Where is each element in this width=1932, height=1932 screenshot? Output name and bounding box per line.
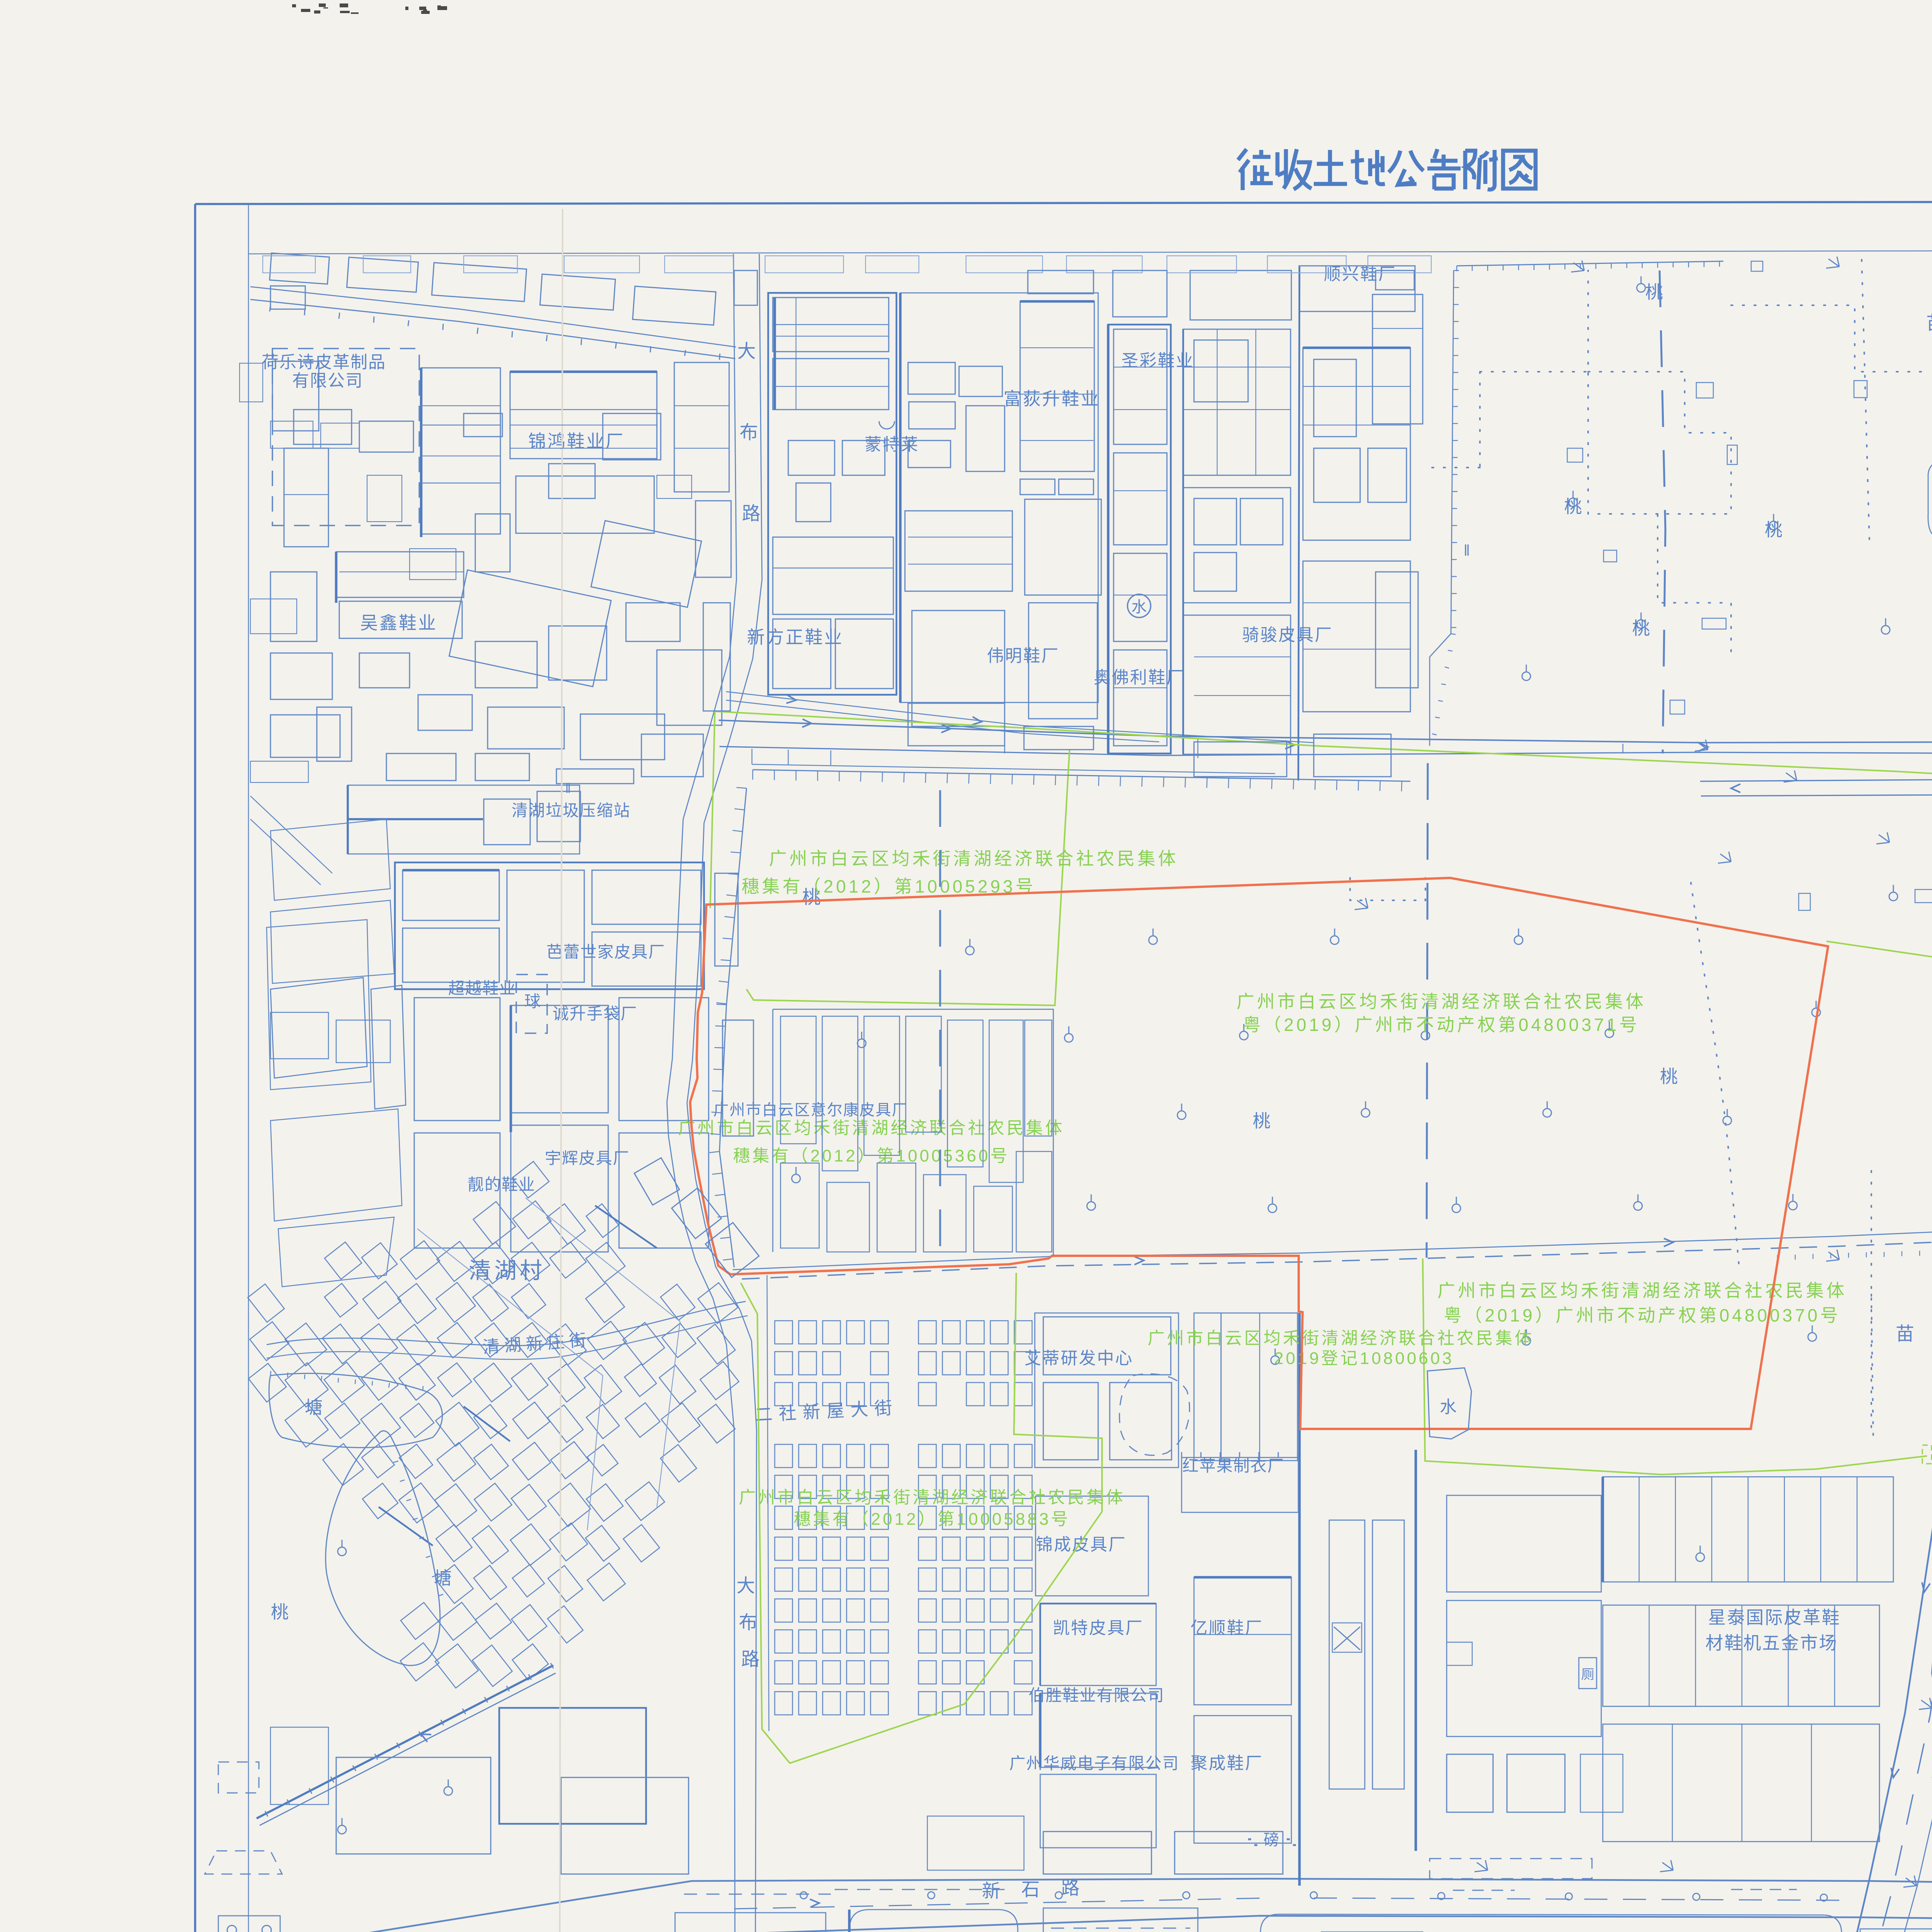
- svg-text:靓的鞋业: 靓的鞋业: [468, 1175, 536, 1194]
- svg-text:穗集有（2012）第10005360号: 穗集有（2012）第10005360号: [733, 1146, 1010, 1165]
- svg-text:广州市白云区均禾街清湖经济联合社农民集体: 广州市白云区均禾街清湖经济联合社农民集体: [1148, 1329, 1534, 1348]
- svg-text:塘: 塘: [305, 1397, 323, 1417]
- svg-text:布: 布: [739, 1612, 757, 1633]
- svg-text:新方正鞋业: 新方正鞋业: [747, 627, 844, 647]
- svg-text:富荻升鞋业: 富荻升鞋业: [1003, 389, 1100, 409]
- svg-text:桃: 桃: [1632, 618, 1650, 638]
- svg-text:广州华威电子有限公司: 广州华威电子有限公司: [1009, 1754, 1179, 1772]
- svg-text:宇辉皮具厂: 宇辉皮具厂: [545, 1149, 630, 1167]
- svg-text:芭蕾世家皮具厂: 芭蕾世家皮具厂: [546, 943, 665, 961]
- svg-text:路: 路: [1061, 1878, 1080, 1898]
- svg-text:亿顺鞋厂: 亿顺鞋厂: [1190, 1619, 1263, 1638]
- svg-text:‖: ‖: [1464, 542, 1470, 559]
- svg-text:广州市白云区均禾街清湖经济联合社农民集体: 广州市白云区均禾街清湖经济联合社农民集体: [739, 1488, 1125, 1507]
- svg-text:蒙特莱: 蒙特莱: [865, 435, 919, 454]
- svg-text:星泰国际皮革鞋: 星泰国际皮革鞋: [1708, 1607, 1841, 1628]
- svg-text:诚升手袋厂: 诚升手袋厂: [553, 1005, 638, 1023]
- svg-text:艾蒂研发中心: 艾蒂研发中心: [1024, 1349, 1133, 1368]
- svg-text:穗集有（2012）第10005883号: 穗集有（2012）第10005883号: [794, 1510, 1070, 1529]
- svg-text:超越鞋业: 超越鞋业: [448, 979, 516, 997]
- svg-text:锦成皮具厂: 锦成皮具厂: [1036, 1535, 1127, 1554]
- svg-text:厕: 厕: [1581, 1667, 1594, 1682]
- svg-text:荷乐诗皮革制品: 荷乐诗皮革制品: [262, 353, 386, 372]
- svg-text:桃: 桃: [1253, 1111, 1270, 1131]
- svg-text:吴鑫鞋业: 吴鑫鞋业: [360, 613, 437, 633]
- svg-text:凯特皮具厂: 凯特皮具厂: [1053, 1619, 1144, 1638]
- svg-text:粤（2019）广州市不动产权第04800370号: 粤（2019）广州市不动产权第04800370号: [1444, 1305, 1841, 1325]
- svg-text:广州市白云区意尔康皮具厂: 广州市白云区意尔康皮具厂: [713, 1102, 908, 1119]
- svg-text:伟明鞋厂: 伟明鞋厂: [987, 646, 1060, 665]
- svg-text:粤（2019）广州市不动产权第04800371号: 粤（2019）广州市不动产权第04800371号: [1243, 1015, 1640, 1035]
- svg-text:桃: 桃: [1645, 282, 1663, 302]
- svg-text:桃: 桃: [1660, 1066, 1678, 1087]
- svg-text:水: 水: [1440, 1398, 1457, 1417]
- svg-text:聚成鞋厂: 聚成鞋厂: [1190, 1754, 1263, 1773]
- svg-text:桃: 桃: [1564, 497, 1582, 517]
- svg-text:骑骏皮具厂: 骑骏皮具厂: [1242, 626, 1333, 645]
- svg-text:路: 路: [742, 503, 760, 524]
- svg-text:路: 路: [741, 1649, 760, 1670]
- svg-text:广州市白云区均禾街清湖经济联合社农民集体: 广州市白云区均禾街清湖经济联合社农民集体: [1236, 992, 1646, 1012]
- svg-text:水: 水: [1131, 599, 1147, 616]
- svg-text:大: 大: [737, 341, 756, 362]
- svg-text:‖: ‖: [565, 780, 571, 796]
- svg-text:清湖村: 清湖村: [469, 1258, 545, 1283]
- svg-text:材鞋机五金市场: 材鞋机五金市场: [1706, 1633, 1838, 1653]
- svg-text:广州市白云区均禾街清湖经济联合社农民集体: 广州市白云区均禾街清湖经济联合社农民集体: [769, 849, 1179, 869]
- svg-text:石: 石: [1021, 1879, 1040, 1900]
- svg-text:大: 大: [736, 1576, 755, 1596]
- svg-text:磅: 磅: [1264, 1832, 1279, 1849]
- svg-text:桃: 桃: [271, 1602, 289, 1622]
- svg-text:桃: 桃: [1765, 520, 1782, 540]
- svg-text:球: 球: [524, 992, 541, 1010]
- svg-text:塘: 塘: [434, 1568, 452, 1588]
- svg-text:新: 新: [982, 1881, 1000, 1901]
- svg-text:有限公司: 有限公司: [292, 371, 363, 390]
- svg-text:广州市白云区均禾街清湖经济联合社农民集体: 广州市白云区均禾街清湖经济联合社农民集体: [678, 1119, 1065, 1138]
- svg-text:顺兴鞋厂: 顺兴鞋厂: [1324, 265, 1396, 284]
- svg-text:苗: 苗: [1896, 1324, 1914, 1344]
- svg-text:伯胜鞋业有限公司: 伯胜鞋业有限公司: [1029, 1686, 1165, 1704]
- svg-text:清湖垃圾压缩站: 清湖垃圾压缩站: [512, 801, 631, 820]
- svg-text:红苹果制衣厂: 红苹果制衣厂: [1182, 1457, 1284, 1475]
- svg-text:布: 布: [740, 422, 758, 443]
- svg-text:奥佛利鞋厂: 奥佛利鞋厂: [1094, 668, 1185, 687]
- svg-text:苗: 苗: [1926, 313, 1932, 333]
- svg-text:广州市白云区均禾街清湖经济联合社农民集体: 广州市白云区均禾街清湖经济联合社农民集体: [1437, 1281, 1847, 1301]
